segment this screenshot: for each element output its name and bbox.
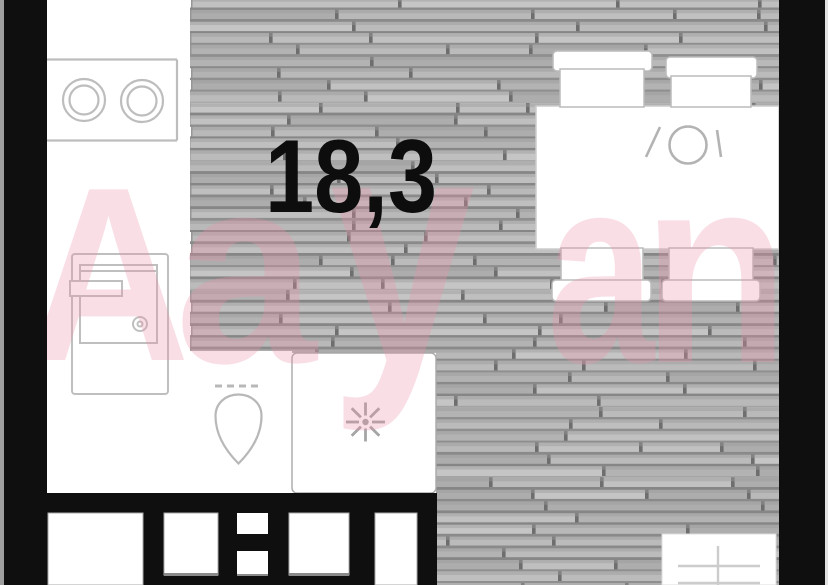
svg-text:18,3: 18,3 [265,119,437,235]
svg-text:a: a [547,121,656,419]
svg-text:A: A [27,136,190,413]
svg-text:n: n [642,120,789,420]
